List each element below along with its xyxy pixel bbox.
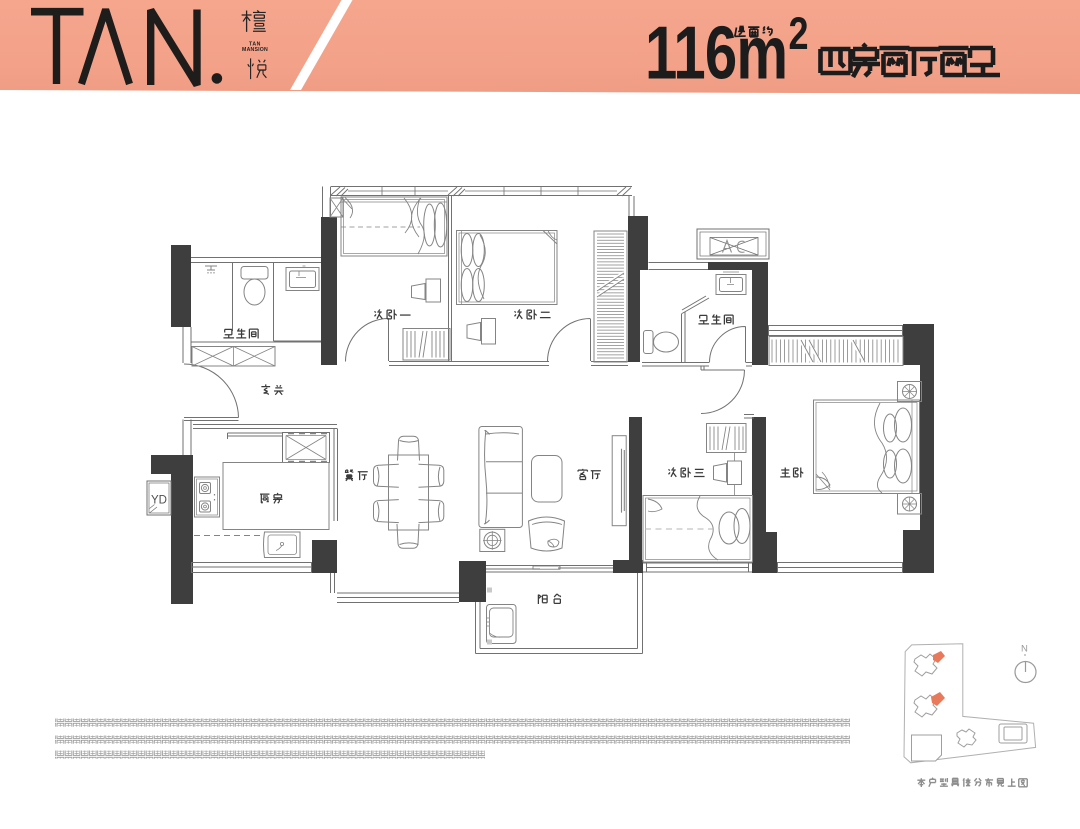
svg-text:N: N [1021, 644, 1028, 655]
svg-text:YD: YD [151, 495, 167, 507]
svg-text:2: 2 [789, 8, 809, 59]
svg-text:MANSION: MANSION [242, 47, 268, 53]
svg-text:116m: 116m [645, 11, 787, 95]
